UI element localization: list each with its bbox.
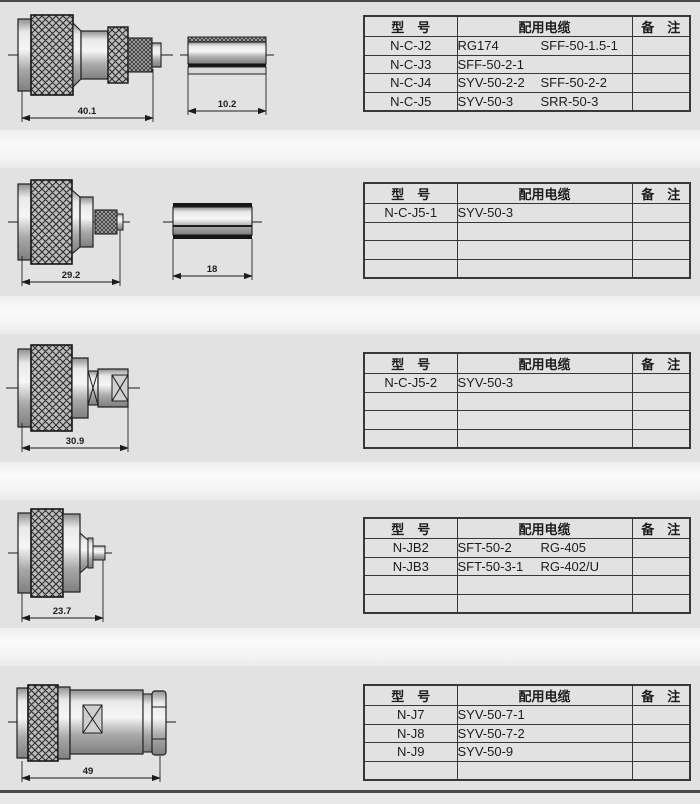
remark-cell [632,706,690,725]
model-cell [364,241,457,260]
page-margin [0,793,700,804]
spec-table-5: 型 号 配用电缆 备 注 N-J7 SYV-50-7-1 N-J8 SYV-50… [363,684,691,781]
table-row [364,411,690,430]
header-row: 型 号 配用电缆 备 注 [364,518,690,539]
dimension-label: 23.7 [53,606,72,617]
table-row: N-C-J5 SYV-50-3SRR-50-3 [364,92,690,111]
model-cell: N-C-J5-1 [364,204,457,223]
col-header-remark: 备 注 [632,183,690,204]
ferrule-body [163,203,262,239]
remark-cell [632,74,690,93]
col-header-cable: 配用电缆 [457,183,632,204]
remark-cell [632,374,690,393]
model-cell: N-J9 [364,743,457,762]
dimension-label: 40.1 [78,106,97,117]
remark-cell [632,539,690,558]
remark-cell [632,37,690,56]
remark-cell [632,594,690,613]
remark-cell [632,576,690,595]
model-cell: N-C-J5 [364,92,457,111]
remark-cell [632,259,690,278]
ferrule-dimension: 10.2 [188,74,266,115]
spec-table-4: 型 号 配用电缆 备 注 N-JB2 SFT-50-2RG-405 N-JB3 … [363,517,691,614]
section-2: 29.2 18 型 号 配用电缆 备 注 [0,168,700,296]
connector-drawing-crimp-short: 29.2 18 [0,168,360,296]
model-cell: N-JB2 [364,539,457,558]
remark-cell [632,724,690,743]
col-header-remark: 备 注 [632,16,690,37]
remark-cell [632,55,690,74]
cable-cell: SYV-50-7-2 [457,724,632,743]
cable-cell [457,222,632,241]
col-header-cable: 配用电缆 [457,16,632,37]
table-row [364,392,690,411]
col-header-model: 型 号 [364,183,457,204]
table-row [364,259,690,278]
remark-cell [632,411,690,430]
table-row: N-C-J2 RG174SFF-50-1.5-1 [364,37,690,56]
connector-body [8,15,173,95]
col-header-remark: 备 注 [632,685,690,706]
cable-cell: SYV-50-9 [457,743,632,762]
remark-cell [632,241,690,260]
section-5: 49 型 号 配用电缆 备 注 N-J7 SYV-50-7-1 N-J8 SYV… [0,666,700,790]
model-cell [364,222,457,241]
remark-cell [632,222,690,241]
spec-table-2: 型 号 配用电缆 备 注 N-C-J5-1 SYV-50-3 [363,182,691,279]
model-cell [364,259,457,278]
table-row: N-JB2 SFT-50-2RG-405 [364,539,690,558]
table-row [364,576,690,595]
dimension-label: 29.2 [62,270,81,281]
remark-cell [632,743,690,762]
cable-cell [457,411,632,430]
table-row [364,241,690,260]
connector-body [8,509,112,597]
cable-cell [457,576,632,595]
section-3: 30.9 型 号 配用电缆 备 注 N-C-J5-2 SYV-50-3 [0,334,700,462]
table-row: N-C-J5-2 SYV-50-3 [364,374,690,393]
remark-cell [632,92,690,111]
cable-cell [457,761,632,780]
cable-cell: SFT-50-3-1RG-402/U [457,557,632,576]
table-row: N-J7 SYV-50-7-1 [364,706,690,725]
dimension-label: 30.9 [66,436,85,447]
dimension-label: 10.2 [218,99,237,110]
spec-table-3: 型 号 配用电缆 备 注 N-C-J5-2 SYV-50-3 [363,352,691,449]
table-row [364,429,690,448]
cable-cell: SYV-50-3 [457,374,632,393]
col-header-model: 型 号 [364,16,457,37]
model-cell: N-C-J3 [364,55,457,74]
section-divider [0,296,700,334]
cable-cell: SYV-50-7-1 [457,706,632,725]
section-4: 23.7 型 号 配用电缆 备 注 N-JB2 SFT-50-2RG-405 N… [0,500,700,628]
cable-cell: SYV-50-3 [457,204,632,223]
table-row [364,222,690,241]
model-cell [364,576,457,595]
header-row: 型 号 配用电缆 备 注 [364,685,690,706]
col-header-cable: 配用电缆 [457,353,632,374]
col-header-remark: 备 注 [632,353,690,374]
col-header-remark: 备 注 [632,518,690,539]
connector-body [6,345,140,431]
section-1: 40.1 10.2 型 号 配用电缆 备 注 [0,2,700,130]
connector-body [8,180,130,264]
cable-cell: RG174SFF-50-1.5-1 [457,37,632,56]
remark-cell [632,557,690,576]
cable-cell [457,392,632,411]
dimension-label: 18 [207,264,218,275]
model-cell [364,429,457,448]
col-header-model: 型 号 [364,353,457,374]
col-header-cable: 配用电缆 [457,518,632,539]
section-divider [0,628,700,666]
cable-cell [457,429,632,448]
table-row: N-C-J5-1 SYV-50-3 [364,204,690,223]
cable-cell [457,259,632,278]
cable-cell: SYV-50-3SRR-50-3 [457,92,632,111]
remark-cell [632,204,690,223]
connector-drawing-clamp-large: 49 [0,666,360,790]
table-row: N-J8 SYV-50-7-2 [364,724,690,743]
catalog-page: 40.1 10.2 型 号 配用电缆 备 注 [0,0,700,804]
model-cell [364,411,457,430]
connector-drawing-crimp-long: 40.1 10.2 [0,2,360,130]
model-cell: N-C-J4 [364,74,457,93]
col-header-cable: 配用电缆 [457,685,632,706]
model-cell: N-C-J5-2 [364,374,457,393]
col-header-model: 型 号 [364,685,457,706]
model-cell [364,594,457,613]
ferrule-body [180,37,274,74]
table-row: N-JB3 SFT-50-3-1RG-402/U [364,557,690,576]
dimension-label: 49 [83,766,94,777]
table-row: N-J9 SYV-50-9 [364,743,690,762]
spec-table-1: 型 号 配用电缆 备 注 N-C-J2 RG174SFF-50-1.5-1 N-… [363,15,691,112]
header-row: 型 号 配用电缆 备 注 [364,16,690,37]
cable-cell [457,594,632,613]
remark-cell [632,761,690,780]
cable-cell: SFT-50-2RG-405 [457,539,632,558]
model-cell: N-JB3 [364,557,457,576]
model-cell: N-C-J2 [364,37,457,56]
table-row: N-C-J3 SFF-50-2-1 [364,55,690,74]
section-divider [0,462,700,500]
table-row [364,761,690,780]
section-divider [0,130,700,168]
model-cell [364,761,457,780]
table-row: N-C-J4 SYV-50-2-2SFF-50-2-2 [364,74,690,93]
connector-drawing-solder-pin: 23.7 [0,500,360,628]
connector-drawing-clamp: 30.9 [0,334,360,462]
col-header-model: 型 号 [364,518,457,539]
remark-cell [632,392,690,411]
cable-cell [457,241,632,260]
model-cell: N-J8 [364,724,457,743]
cable-cell: SFF-50-2-1 [457,55,632,74]
ferrule-dimension: 18 [173,239,252,280]
header-row: 型 号 配用电缆 备 注 [364,183,690,204]
model-cell [364,392,457,411]
cable-cell: SYV-50-2-2SFF-50-2-2 [457,74,632,93]
remark-cell [632,429,690,448]
header-row: 型 号 配用电缆 备 注 [364,353,690,374]
model-cell: N-J7 [364,706,457,725]
table-row [364,594,690,613]
connector-body [8,685,176,761]
